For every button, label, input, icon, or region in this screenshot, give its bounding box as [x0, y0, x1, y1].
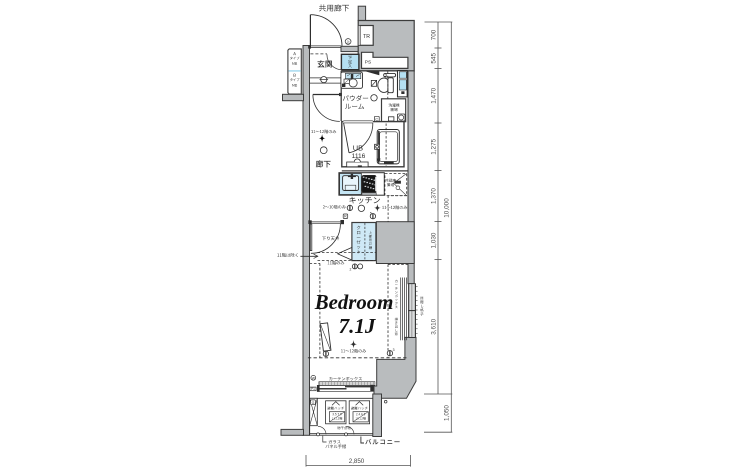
svg-text:1,370: 1,370 [430, 188, 437, 204]
svg-text:1,050: 1,050 [444, 405, 451, 421]
svg-text:2: 2 [350, 268, 352, 272]
svg-text:Bedroom: Bedroom [314, 291, 394, 314]
svg-text:1,030: 1,030 [430, 232, 437, 248]
svg-text:3,610: 3,610 [430, 318, 437, 334]
svg-text:5: 5 [370, 212, 372, 216]
svg-text:C: C [375, 117, 378, 121]
svg-text:1,275: 1,275 [430, 138, 437, 154]
svg-text:3: 3 [393, 348, 395, 352]
svg-text:TR: TR [363, 34, 370, 40]
svg-text:R: R [344, 215, 347, 219]
svg-text:10,000: 10,000 [444, 198, 451, 218]
svg-text:2,850: 2,850 [349, 458, 365, 465]
svg-text:G: G [312, 401, 315, 405]
svg-text:7.1J: 7.1J [339, 314, 377, 338]
svg-text:545: 545 [430, 53, 437, 64]
svg-text:1,470: 1,470 [430, 87, 437, 103]
svg-text:P1: P1 [311, 387, 315, 391]
svg-text:PS: PS [365, 60, 371, 66]
svg-text:UB: UB [353, 143, 363, 152]
svg-text:700: 700 [430, 29, 437, 40]
